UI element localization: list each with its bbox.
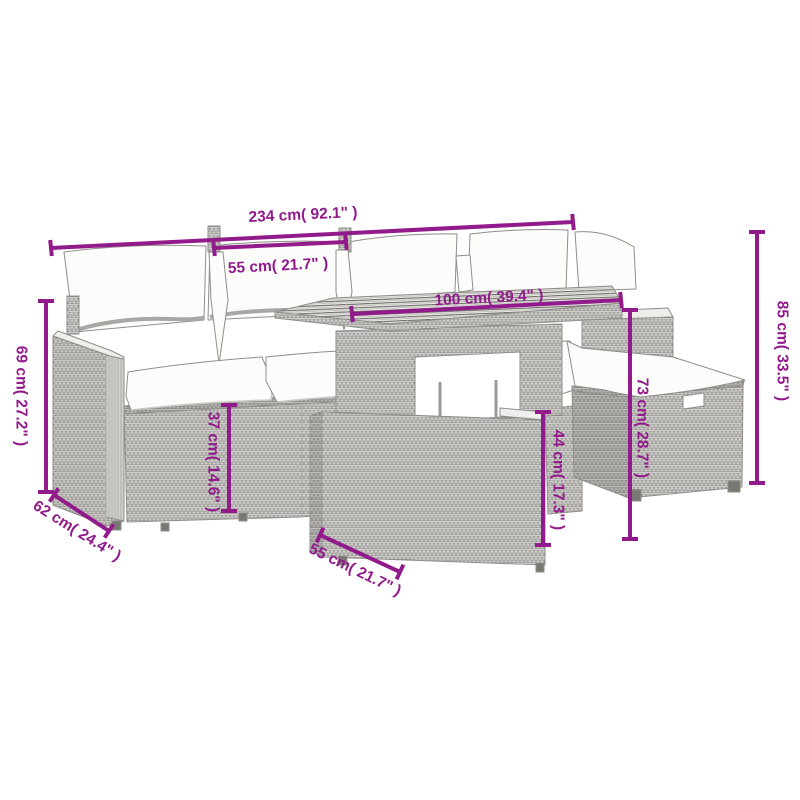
svg-text:37 cm( 14.6" ): 37 cm( 14.6" ) xyxy=(205,412,222,512)
svg-text:69 cm( 27.2" ): 69 cm( 27.2" ) xyxy=(13,346,30,446)
svg-text:73 cm( 28.7" ): 73 cm( 28.7" ) xyxy=(634,378,651,478)
svg-text:85 cm( 33.5" ): 85 cm( 33.5" ) xyxy=(774,301,791,401)
svg-text:44 cm( 17.3" ): 44 cm( 17.3" ) xyxy=(550,430,567,530)
svg-text:234 cm( 92.1" ): 234 cm( 92.1" ) xyxy=(248,204,358,226)
